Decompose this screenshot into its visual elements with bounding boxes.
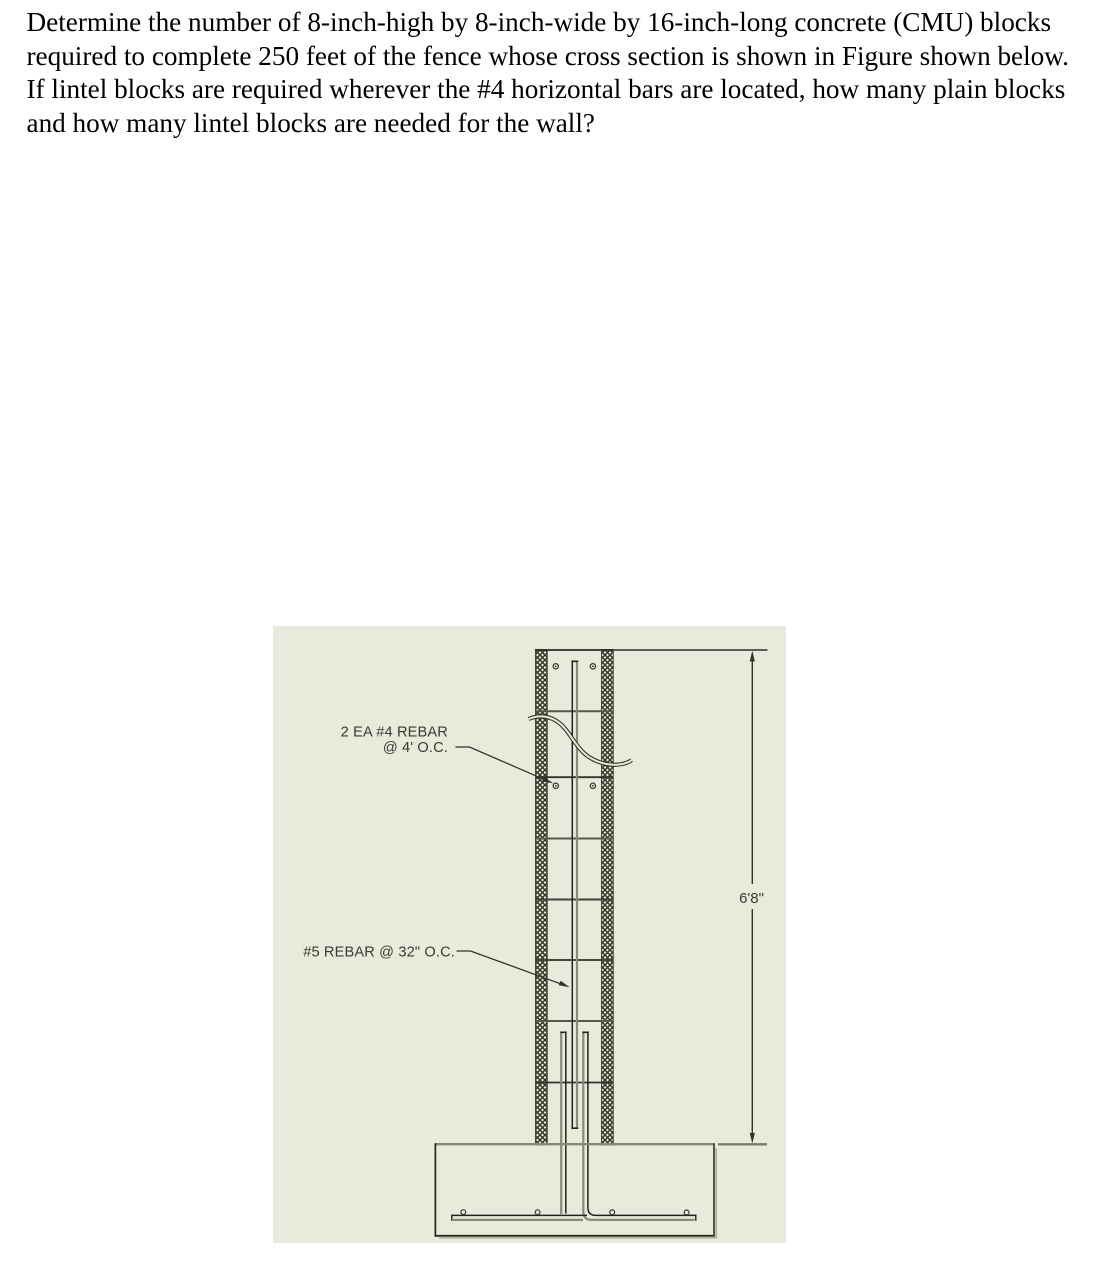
- svg-text:#5 REBAR @ 32" O.C.: #5 REBAR @ 32" O.C.: [303, 945, 455, 961]
- svg-text:2 EA #4 REBAR: 2 EA #4 REBAR: [341, 725, 448, 741]
- svg-text:6'8": 6'8": [739, 890, 764, 907]
- svg-text:@ 4' O.C.: @ 4' O.C.: [383, 740, 448, 756]
